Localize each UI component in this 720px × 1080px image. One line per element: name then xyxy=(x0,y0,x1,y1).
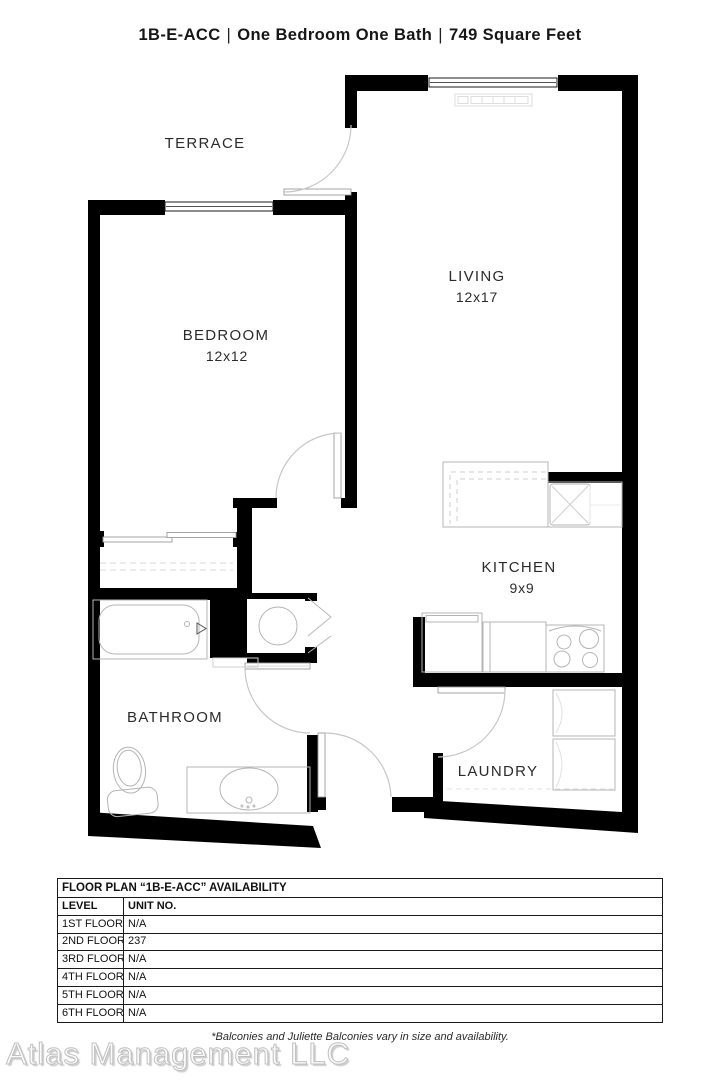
level-cell: 2ND FLOOR xyxy=(58,933,124,951)
stove-fixture xyxy=(546,625,604,672)
table-row: 5TH FLOOR N/A xyxy=(58,986,663,1004)
room-label-laundry: LAUNDRY xyxy=(458,763,539,780)
living-window xyxy=(429,78,557,87)
refrigerator-fixture xyxy=(422,613,482,672)
toilet-fixture xyxy=(102,745,159,818)
table-row: 6TH FLOOR N/A xyxy=(58,1004,663,1022)
bathroom-door xyxy=(245,663,310,733)
doors xyxy=(103,125,505,797)
floor-plan-drawing: TERRACE BEDROOM 12x12 LIVING 12x17 KITCH… xyxy=(0,0,720,860)
vanity-sink-fixture xyxy=(187,767,310,813)
entry-door xyxy=(318,733,391,797)
walls xyxy=(88,75,638,848)
bathroom-bottom-wall xyxy=(88,812,321,848)
unit-cell: 237 xyxy=(124,933,663,951)
plumbing-wall-block xyxy=(210,593,247,658)
availability-table: FLOOR PLAN “1B-E-ACC” AVAILABILITY LEVEL… xyxy=(57,878,663,1023)
floor-plan-page: 1B-E-ACC|One Bedroom One Bath|749 Square… xyxy=(0,0,720,1080)
level-cell: 5TH FLOOR xyxy=(58,986,124,1004)
unit-cell: N/A xyxy=(124,1004,663,1022)
room-dims-bedroom: 12x12 xyxy=(206,348,248,364)
balcony-disclaimer-note: *Balconies and Juliette Balconies vary i… xyxy=(0,1031,720,1043)
table-row: 3RD FLOOR N/A xyxy=(58,951,663,969)
dryer-fixture xyxy=(553,739,615,790)
column-header-level: LEVEL xyxy=(58,898,124,916)
room-label-kitchen: KITCHEN xyxy=(482,559,557,576)
table-row: 1ST FLOOR N/A xyxy=(58,915,663,933)
room-label-living: LIVING xyxy=(449,268,506,285)
terrace-door xyxy=(284,125,351,195)
level-cell: 6TH FLOOR xyxy=(58,1004,124,1022)
bedroom-closet-sliding-doors xyxy=(103,533,236,543)
column-header-unit: UNIT NO. xyxy=(124,898,663,916)
room-label-bathroom: BATHROOM xyxy=(127,709,223,726)
table-row: 4TH FLOOR N/A xyxy=(58,969,663,987)
kitchen-sink-fixture xyxy=(548,482,622,527)
unit-cell: N/A xyxy=(124,969,663,987)
room-dims-living: 12x17 xyxy=(456,289,498,305)
bedroom-door xyxy=(276,433,341,498)
washer-fixture xyxy=(553,690,615,736)
availability-table-title: FLOOR PLAN “1B-E-ACC” AVAILABILITY xyxy=(58,879,663,898)
unit-cell: N/A xyxy=(124,951,663,969)
baseboard-heater xyxy=(455,94,532,106)
level-cell: 1ST FLOOR xyxy=(58,915,124,933)
level-cell: 3RD FLOOR xyxy=(58,951,124,969)
closet-rod-dashes xyxy=(100,563,233,570)
laundry-door xyxy=(438,687,505,757)
bedroom-window xyxy=(165,202,273,211)
fixtures xyxy=(93,462,622,817)
table-row: 2ND FLOOR 237 xyxy=(58,933,663,951)
kitchen-island-counter xyxy=(443,462,548,527)
laundry-bottom-wall xyxy=(424,800,638,833)
room-label-bedroom: BEDROOM xyxy=(183,327,270,344)
level-cell: 4TH FLOOR xyxy=(58,969,124,987)
kitchen-counter xyxy=(483,622,546,672)
unit-cell: N/A xyxy=(124,986,663,1004)
room-dims-kitchen: 9x9 xyxy=(510,580,535,596)
room-label-terrace: TERRACE xyxy=(165,135,246,152)
bathtub-fixture xyxy=(93,600,207,659)
unit-cell: N/A xyxy=(124,915,663,933)
utility-closet-bifold-door xyxy=(308,598,331,653)
